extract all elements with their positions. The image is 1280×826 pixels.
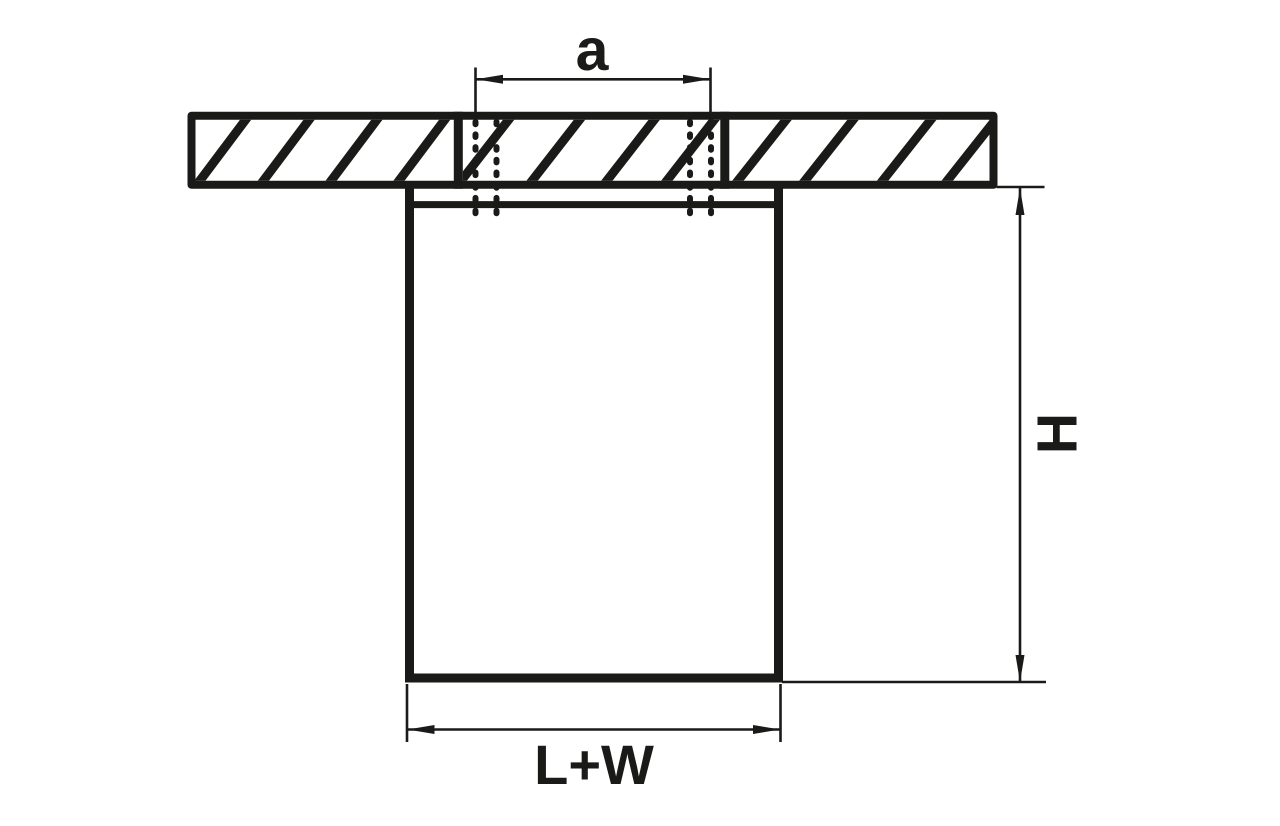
- svg-text:L+W: L+W: [534, 733, 654, 796]
- svg-text:a: a: [576, 17, 610, 83]
- svg-text:H: H: [1026, 413, 1090, 454]
